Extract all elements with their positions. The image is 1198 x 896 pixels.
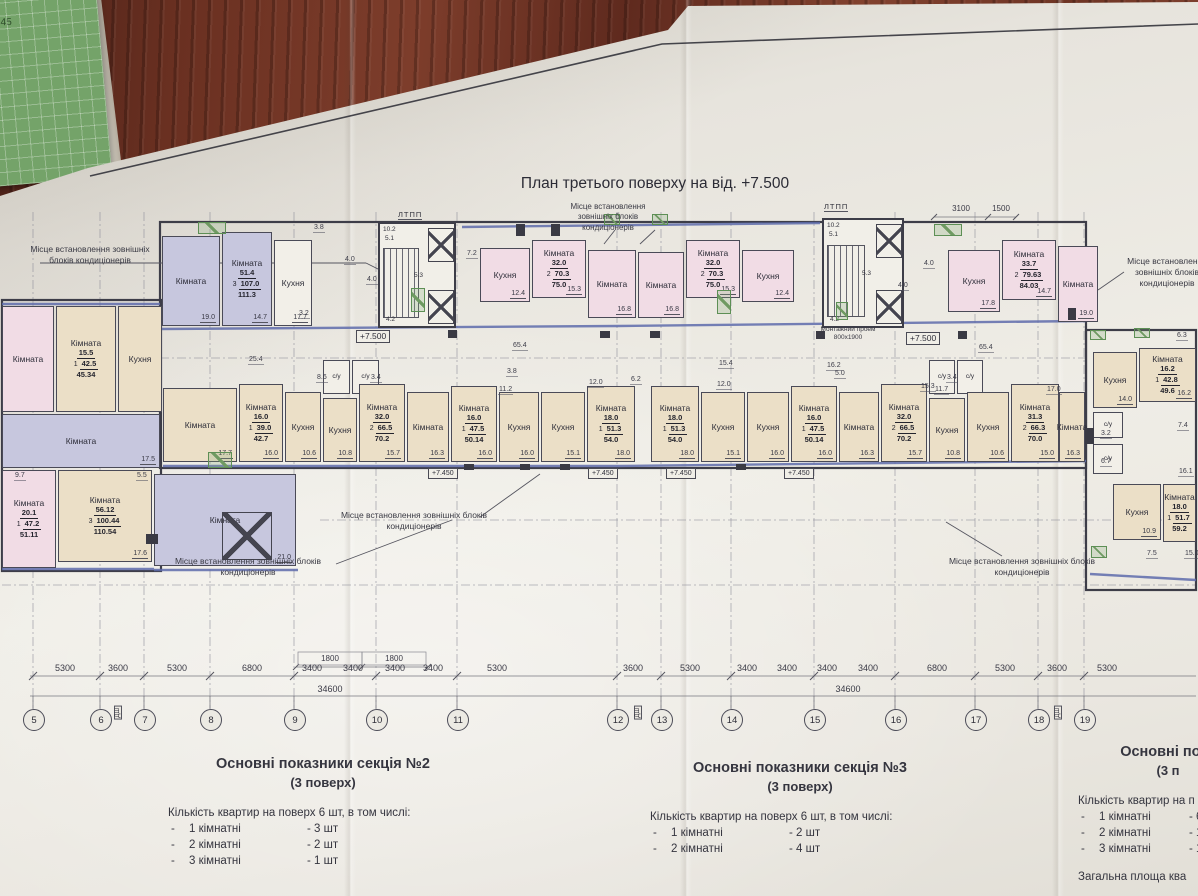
room: Кухня12.4	[480, 248, 530, 302]
apartment-stamp: 31.3266.370.0	[1023, 412, 1048, 443]
apartment-count-row: -1 кімнатні- 6	[1078, 811, 1198, 823]
apartment-stamp: 18.0151.354.0	[599, 413, 624, 444]
dimension-label: 12.0	[588, 379, 604, 388]
dimension-label: 65.4	[512, 342, 528, 351]
shaft-mark	[520, 464, 530, 470]
room-label: Кухня	[977, 423, 1000, 432]
room-label: Кімната	[367, 403, 397, 412]
room-label: с/у	[966, 374, 974, 381]
room: Кімната16.8	[638, 252, 684, 318]
room-area: 14.7	[252, 314, 268, 323]
core-dimension: 5.1	[385, 235, 394, 242]
dimension-value: 5300	[995, 663, 1015, 673]
room: Кімната16.8	[588, 250, 636, 318]
room-label: Кухня	[508, 423, 531, 432]
summary-subtitle: (3 п	[1078, 763, 1198, 778]
room-area: 10.6	[989, 450, 1005, 459]
ac-installation-note: Місце встановлення зовнішніх блоків конд…	[556, 202, 660, 233]
room: Кімната17.7	[163, 388, 237, 462]
apartment-stamp: 33.7279.6384.03	[1015, 259, 1044, 290]
room-label: Кімната	[176, 277, 206, 286]
room-label: Кухня	[292, 423, 315, 432]
room-area: 17.6	[132, 550, 148, 559]
axis-bubble: 8	[200, 709, 222, 731]
dimension-label: 12.0	[716, 381, 732, 390]
room: Кімната31.3266.370.015.0	[1011, 384, 1059, 462]
ac-unit-mark	[836, 302, 848, 320]
room: Кімната18.0151.354.018.0	[587, 386, 635, 462]
room-label: Кімната	[14, 499, 44, 508]
room-area: 16.8	[664, 306, 680, 315]
room-label: Кімната	[1020, 403, 1050, 412]
room-label: Кімната	[597, 280, 627, 289]
shaft-mark	[146, 534, 158, 544]
dimension-value: 6800	[927, 663, 947, 673]
dimension-label: 6.2	[630, 376, 642, 385]
axis-bubble: 11	[447, 709, 469, 731]
room-label: Кухня	[129, 355, 152, 364]
room-label: Кімната	[1057, 423, 1087, 432]
dimension-value: 1800	[321, 654, 339, 663]
room-label: Кімната	[413, 423, 443, 432]
room-label: Кімната	[459, 404, 489, 413]
room: Кімната16.0147.550.1416.0	[791, 386, 837, 462]
dimension-label: 17.0	[1046, 386, 1062, 395]
room-area: 16.2	[1176, 390, 1192, 399]
dimension-label: 15.0	[1184, 550, 1198, 559]
room: Кімната19.0	[162, 236, 220, 326]
dimension-value: 3600	[1047, 663, 1067, 673]
summary-intro: Кількість квартир на поверх 6 шт, в том …	[650, 811, 950, 823]
room-area: 16.3	[1065, 450, 1081, 459]
apartment-stamp: 16.0147.550.14	[462, 413, 487, 444]
elevator-icon	[428, 290, 454, 324]
dimension-label: 3.8	[506, 368, 518, 377]
dimension-label: 6.7	[1100, 458, 1112, 467]
dimension-value: 5300	[487, 663, 507, 673]
dimension-label: 16.1	[1178, 468, 1194, 477]
room-label: Кімната	[799, 404, 829, 413]
dimension-label: 3.4	[370, 374, 382, 383]
dimension-value: 3400	[817, 663, 837, 673]
apartment-stamp: 32.0266.570.2	[892, 412, 917, 443]
room-label: Кухня	[712, 423, 735, 432]
room-area: 16.0	[769, 450, 785, 459]
room: Кухня14.0	[1093, 352, 1137, 408]
handwritten-mark: 45	[0, 17, 11, 28]
room-area: 10.8	[337, 450, 353, 459]
dimension-label: 4.0	[923, 260, 935, 269]
room-area: 14.0	[1117, 396, 1133, 405]
dimension-total: 34600	[317, 684, 342, 694]
room: с/у	[957, 360, 983, 394]
dimension-label: 8.6	[316, 374, 328, 383]
apartment-stamp: 16.0147.550.14	[802, 413, 827, 444]
apartment-count-row: -1 кімнатні- 3 шт	[168, 823, 478, 835]
elevator-icon	[222, 512, 272, 560]
dimension-value: 3100	[952, 204, 970, 213]
room-label: Кімната	[844, 423, 874, 432]
dimension-label: 65.4	[978, 344, 994, 353]
dimension-value: 3400	[423, 663, 443, 673]
shaft-mark	[1068, 308, 1076, 320]
axis-bubble: 13	[651, 709, 673, 731]
room: Кухня10.8	[929, 398, 965, 462]
apartment-stamp: 32.0270.375.0	[701, 258, 726, 289]
room-label: Кухня	[282, 279, 305, 288]
room: Кімната19.0	[1058, 246, 1098, 322]
room-area: 15.1	[565, 450, 581, 459]
room-area: 16.0	[519, 450, 535, 459]
level-marker: +7.450	[428, 468, 458, 479]
room-label: Кухня	[936, 426, 959, 435]
room-label: с/у	[1104, 422, 1112, 429]
room: Кімната32.0266.570.215.7	[881, 384, 927, 462]
room-label: Кімната	[1164, 493, 1194, 502]
room-area: 15.7	[385, 450, 401, 459]
axis-bubble: 10	[366, 709, 388, 731]
room-area: 15.0	[1039, 450, 1055, 459]
room-area: 16.3	[859, 450, 875, 459]
room-label: Кімната	[1063, 280, 1093, 289]
stair-elevator-core: 10.25.14.25.3	[822, 218, 904, 328]
dimension-label: 9.7	[14, 472, 26, 481]
dimension-value: 3400	[858, 663, 878, 673]
expansion-joint-mark: ДШ	[114, 706, 122, 720]
room: Кухня17.8	[948, 250, 1000, 312]
apartment-count-row: -2 кімнатні- 4 шт	[650, 843, 950, 855]
ac-unit-mark	[1134, 328, 1150, 338]
expansion-joint-mark: ДШ	[1054, 706, 1062, 720]
core-dimension: 5.1	[829, 231, 838, 238]
ac-installation-note: Місце встановлення зовнішніх блоків конд…	[158, 556, 338, 578]
room-label: с/у	[332, 374, 340, 381]
summary-title: Основні показники секція №2	[168, 756, 478, 772]
apartment-count-row: -1 кімнатні- 2 шт	[650, 827, 950, 839]
ac-installation-note: Місце встановлення зовнішніх блоків конд…	[330, 510, 498, 532]
shaft-mark	[958, 331, 967, 339]
room-area: 18.0	[679, 450, 695, 459]
room-area: 19.0	[200, 314, 216, 323]
room: Кухня10.6	[285, 392, 321, 462]
room-area: 12.4	[510, 290, 526, 299]
room: Кухня16.0	[499, 392, 539, 462]
room: Кімната16.3	[407, 392, 449, 462]
room-label: Кімната	[66, 437, 96, 446]
dimension-label: 3.8	[313, 224, 325, 233]
apartment-stamp: 32.0266.570.2	[370, 412, 395, 443]
dimension-label: 11.7	[934, 386, 949, 395]
dimension-label: 15.4	[718, 360, 734, 369]
dimension-label: 7.5	[1146, 550, 1158, 559]
room-label: Кімната	[1152, 355, 1182, 364]
core-dimension: 5.3	[862, 270, 871, 277]
room-label: Кімната	[660, 404, 690, 413]
room-label: Кімната	[698, 249, 728, 258]
room: Кімната18.0151.354.018.0	[651, 386, 699, 462]
room: Кімната16.3	[839, 392, 879, 462]
summary-intro: Кількість квартир на поверх 6 шт, в том …	[168, 807, 478, 819]
level-marker: +7.450	[666, 468, 696, 479]
room: Кухня12.4	[742, 250, 794, 302]
room: Кухня	[118, 306, 162, 412]
room-area: 16.3	[429, 450, 445, 459]
room-label: Кімната	[90, 496, 120, 505]
shaft-mark	[560, 464, 570, 470]
axis-bubble: 7	[134, 709, 156, 731]
apartment-stamp: 16.0139.042.7	[249, 412, 274, 443]
plan-title: План третього поверху на від. +7.500	[455, 175, 855, 193]
apartment-stamp: 20.1147.251.11	[17, 508, 42, 539]
ac-unit-mark	[208, 452, 232, 468]
room: Кухня10.6	[967, 392, 1009, 462]
axis-bubble: 19	[1074, 709, 1096, 731]
summary-title: Основні показники секція №3	[650, 760, 950, 776]
apartment-stamp: 18.0151.354.0	[663, 413, 688, 444]
ac-unit-mark	[198, 222, 226, 234]
room-area: 12.4	[774, 290, 790, 299]
room-label: Кімната	[646, 281, 676, 290]
apartment-stamp: 15.5142.545.34	[74, 348, 99, 379]
room-area: 16.0	[817, 450, 833, 459]
axis-bubble: 16	[885, 709, 907, 731]
room: Кімната51.43107.0111.314.7	[222, 232, 272, 326]
dimension-value: 3400	[385, 663, 405, 673]
axis-bubble: 14	[721, 709, 743, 731]
dimension-label: 4.0	[366, 276, 378, 285]
core-dimension: 5.3	[414, 272, 423, 279]
core-dimension: 10.2	[827, 222, 840, 229]
dimension-total: 34600	[835, 684, 860, 694]
level-marker: +7.500	[356, 330, 390, 343]
level-marker: +7.450	[588, 468, 618, 479]
room-area: 10.9	[1141, 528, 1157, 537]
ltpp-label: ЛТПП	[824, 202, 848, 212]
dimension-value: 3400	[737, 663, 757, 673]
ltpp-label: ЛТПП	[398, 210, 422, 220]
room: Кімната16.0139.042.716.0	[239, 384, 283, 462]
room: Кухня15.1	[701, 392, 745, 462]
apartment-stamp: 51.43107.0111.3	[233, 268, 262, 299]
core-dimension: 4.2	[386, 316, 395, 323]
dimension-value: 5300	[1097, 663, 1117, 673]
room-area: 16.0	[477, 450, 493, 459]
room: Кухня16.0	[747, 392, 789, 462]
room-label: с/у	[361, 374, 369, 381]
ac-unit-mark	[934, 224, 962, 236]
room: Кімната32.0266.570.215.7	[359, 384, 405, 462]
room-area: 19.0	[1078, 310, 1094, 319]
dimension-label: 4.0	[897, 282, 909, 291]
room-label: Кімната	[232, 259, 262, 268]
axis-bubble: 18	[1028, 709, 1050, 731]
shaft-mark	[600, 331, 610, 338]
axis-bubble: 15	[804, 709, 826, 731]
axis-bubble: 9	[284, 709, 306, 731]
dimension-value: 1500	[992, 204, 1010, 213]
section-3-summary: Основні показники секція №3 (3 поверх) К…	[650, 760, 950, 855]
axis-bubble: 17	[965, 709, 987, 731]
shaft-mark	[736, 464, 746, 470]
apartment-count-row: -2 кімнатні- 1	[1078, 827, 1198, 839]
room-label: Кухня	[757, 423, 780, 432]
room-label: Кухня	[1104, 376, 1127, 385]
elevator-icon	[876, 290, 902, 324]
room: Кімната17.5	[2, 414, 160, 468]
elevator-icon	[428, 228, 454, 262]
elevator-icon	[876, 224, 902, 258]
montage-opening-note: Монтажний проем 800х1900	[818, 326, 878, 342]
room: Кімната16.3	[1059, 392, 1085, 462]
room-label: Кімната	[71, 339, 101, 348]
photo-of-floor-plan: 45 План третього поверху на від. +7.500 …	[0, 0, 1198, 896]
summary-subtitle: (3 поверх)	[168, 775, 478, 790]
room: Кімната16.2142.849.616.2	[1139, 348, 1196, 402]
room-area: 17.5	[140, 456, 156, 465]
room-area: 17.8	[980, 300, 996, 309]
room: Кімната56.123100.44110.5417.6	[58, 470, 152, 562]
room-area: 16.0	[263, 450, 279, 459]
apartment-count-list: -1 кімнатні- 2 шт-2 кімнатні- 4 шт	[650, 827, 950, 855]
room-area: 15.7	[907, 450, 923, 459]
room-label: Кімната	[596, 404, 626, 413]
dimension-label: 7.2	[466, 250, 478, 259]
room: Кухня10.8	[323, 398, 357, 462]
dimension-value: 5300	[55, 663, 75, 673]
expansion-joint-mark: ДШ	[634, 706, 642, 720]
dimension-label: 3.2	[1100, 430, 1112, 439]
room-label: Кухня	[552, 423, 575, 432]
ac-unit-mark	[717, 290, 731, 314]
dimension-value: 3600	[623, 663, 643, 673]
dimension-value: 1800	[385, 654, 403, 663]
dimension-label: 25.4	[248, 356, 264, 365]
room: Кімната16.0147.550.1416.0	[451, 386, 497, 462]
shaft-mark	[464, 464, 474, 470]
room-area: 14.7	[1036, 288, 1052, 297]
room-label: Кімната	[889, 403, 919, 412]
apartment-stamp: 56.123100.44110.54	[89, 505, 122, 536]
dimension-label: 5.5	[136, 472, 148, 481]
dimension-label: 11.2	[498, 386, 513, 395]
room-area: 15.1	[725, 450, 741, 459]
room-area: 10.6	[301, 450, 317, 459]
dimension-label: 3.2	[298, 310, 310, 319]
axis-bubble: 6	[90, 709, 112, 731]
room: Кімната32.0270.375.015.3	[686, 240, 740, 298]
dimension-value: 3400	[777, 663, 797, 673]
ac-installation-note: Місце встановлення зовнішніх блоків конд…	[24, 244, 156, 266]
room-label: Кухня	[757, 272, 780, 281]
level-marker: +7.450	[784, 468, 814, 479]
section-4-summary: Основні пока (3 п Кількість квартир на п…	[1078, 744, 1198, 883]
ac-installation-note: Місце встановлення зовнішніх блоків конд…	[1124, 256, 1198, 289]
ac-unit-mark	[411, 288, 425, 312]
room: Кімната15.5142.545.34	[56, 306, 116, 412]
core-dimension: 10.2	[383, 226, 396, 233]
room: Кімната33.7279.6384.0314.7	[1002, 240, 1056, 300]
dimension-label: 5.0	[834, 370, 846, 379]
room-area: 15.3	[566, 286, 582, 295]
room-label: Кухня	[329, 426, 352, 435]
dimension-value: 3600	[108, 663, 128, 673]
room-label: Кухня	[963, 277, 986, 286]
room-area: 18.0	[615, 450, 631, 459]
apartment-stamp: 18.0151.759.2	[1167, 502, 1192, 533]
summary-intro: Кількість квартир на п	[1078, 795, 1198, 807]
dimension-label: 6.3	[1176, 332, 1188, 341]
apartment-stamp: 32.0270.375.0	[547, 258, 572, 289]
room: Кухня15.1	[541, 392, 585, 462]
apartment-count-list: -1 кімнатні- 6-2 кімнатні- 1-3 кімнатні-…	[1078, 811, 1198, 855]
stair-elevator-core: 10.25.14.25.3	[378, 222, 456, 328]
room: Кухня10.9	[1113, 484, 1161, 540]
dimension-value: 5300	[680, 663, 700, 673]
room-label: Кімната	[13, 355, 43, 364]
shaft-mark	[516, 224, 525, 236]
room-label: Кухня	[494, 271, 517, 280]
summary-footer: Загальна площа ква	[1078, 871, 1198, 883]
room-label: Кімната	[246, 403, 276, 412]
room-area: 16.8	[616, 306, 632, 315]
room-label: Кімната	[185, 421, 215, 430]
shaft-mark	[448, 330, 457, 338]
dimension-value: 5300	[167, 663, 187, 673]
dimension-label: 7.4	[1177, 422, 1189, 431]
room: Кімната32.0270.375.015.3	[532, 240, 586, 298]
ac-unit-mark	[1090, 330, 1106, 340]
room: Кімната	[2, 306, 54, 412]
dimension-label: 3.4	[946, 374, 958, 383]
room: Кімната20.1147.251.11	[2, 470, 56, 568]
axis-bubble: 12	[607, 709, 629, 731]
section-2-summary: Основні показники секція №2 (3 поверх) К…	[168, 756, 478, 867]
room-label: Кімната	[1014, 250, 1044, 259]
level-marker: +7.500	[906, 332, 940, 345]
apartment-count-row: -2 кімнатні- 2 шт	[168, 839, 478, 851]
apartment-count-list: -1 кімнатні- 3 шт-2 кімнатні- 2 шт-3 кім…	[168, 823, 478, 867]
dimension-label: 4.0	[344, 256, 356, 265]
summary-subtitle: (3 поверх)	[650, 779, 950, 794]
summary-title: Основні пока	[1078, 744, 1198, 760]
apartment-count-row: -3 кімнатні- 1 шт	[168, 855, 478, 867]
dimension-value: 6800	[242, 663, 262, 673]
room-label: с/у	[938, 374, 946, 381]
dimension-value: 3400	[302, 663, 322, 673]
ac-installation-note: Місце встановлення зовнішніх блоків конд…	[946, 556, 1098, 578]
green-grid-sheet: 45	[0, 0, 112, 187]
dimension-value: 3400	[343, 663, 363, 673]
shaft-mark	[650, 331, 660, 338]
shaft-mark	[1085, 428, 1094, 444]
axis-bubble: 5	[23, 709, 45, 731]
room: Кімната18.0151.759.2	[1163, 484, 1196, 542]
room-label: Кімната	[544, 249, 574, 258]
room-area: 10.8	[945, 450, 961, 459]
apartment-count-row: -3 кімнатні- 1	[1078, 843, 1198, 855]
room-label: Кухня	[1126, 508, 1149, 517]
